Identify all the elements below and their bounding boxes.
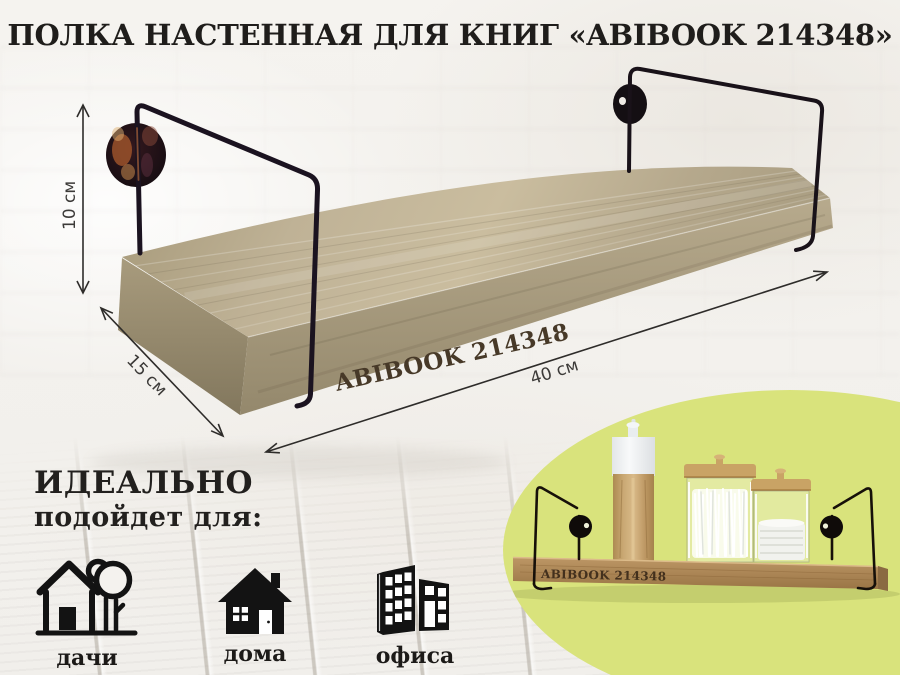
inset-cylinder-dispenser: [612, 419, 655, 563]
ideal-line1: ИДЕАЛЬНО: [34, 466, 263, 500]
inset-board-label: ABIBOOK 214348: [540, 567, 667, 584]
use-case-label-ofisa: офиса: [372, 643, 458, 669]
product-card: ПОЛКА НАСТЕННАЯ ДЛЯ КНИГ «ABIBOOK 214348…: [0, 0, 900, 675]
inset-jar-swabs: [684, 455, 756, 563]
shelf-board: ABIBOOK 214348: [118, 167, 833, 415]
house-icon: [216, 564, 294, 636]
use-case-label-doma: дома: [214, 641, 296, 667]
ideal-line2: подойдет для:: [34, 503, 263, 533]
width-dimension-label: 40 см: [528, 355, 581, 389]
inset-right-disc-hole: [823, 523, 828, 528]
inset-photo: ABIBOOK 214348: [500, 390, 900, 675]
page-title: ПОЛКА НАСТЕННАЯ ДЛЯ КНИГ «ABIBOOK 214348…: [0, 18, 900, 52]
country-house-with-tree-icon: [35, 550, 139, 640]
use-case-doma: дома: [214, 564, 296, 667]
use-case-dacha: дачи: [34, 550, 140, 671]
inset-jar-pads: [751, 469, 811, 563]
office-building-icon: [375, 558, 455, 638]
use-case-ofisa: офиса: [372, 558, 458, 669]
use-case-label-dacha: дачи: [34, 645, 140, 671]
ideal-block: ИДЕАЛЬНО подойдет для:: [34, 466, 263, 533]
height-dimension-label: 10 см: [60, 181, 80, 230]
inset-left-disc-hole: [584, 523, 589, 528]
